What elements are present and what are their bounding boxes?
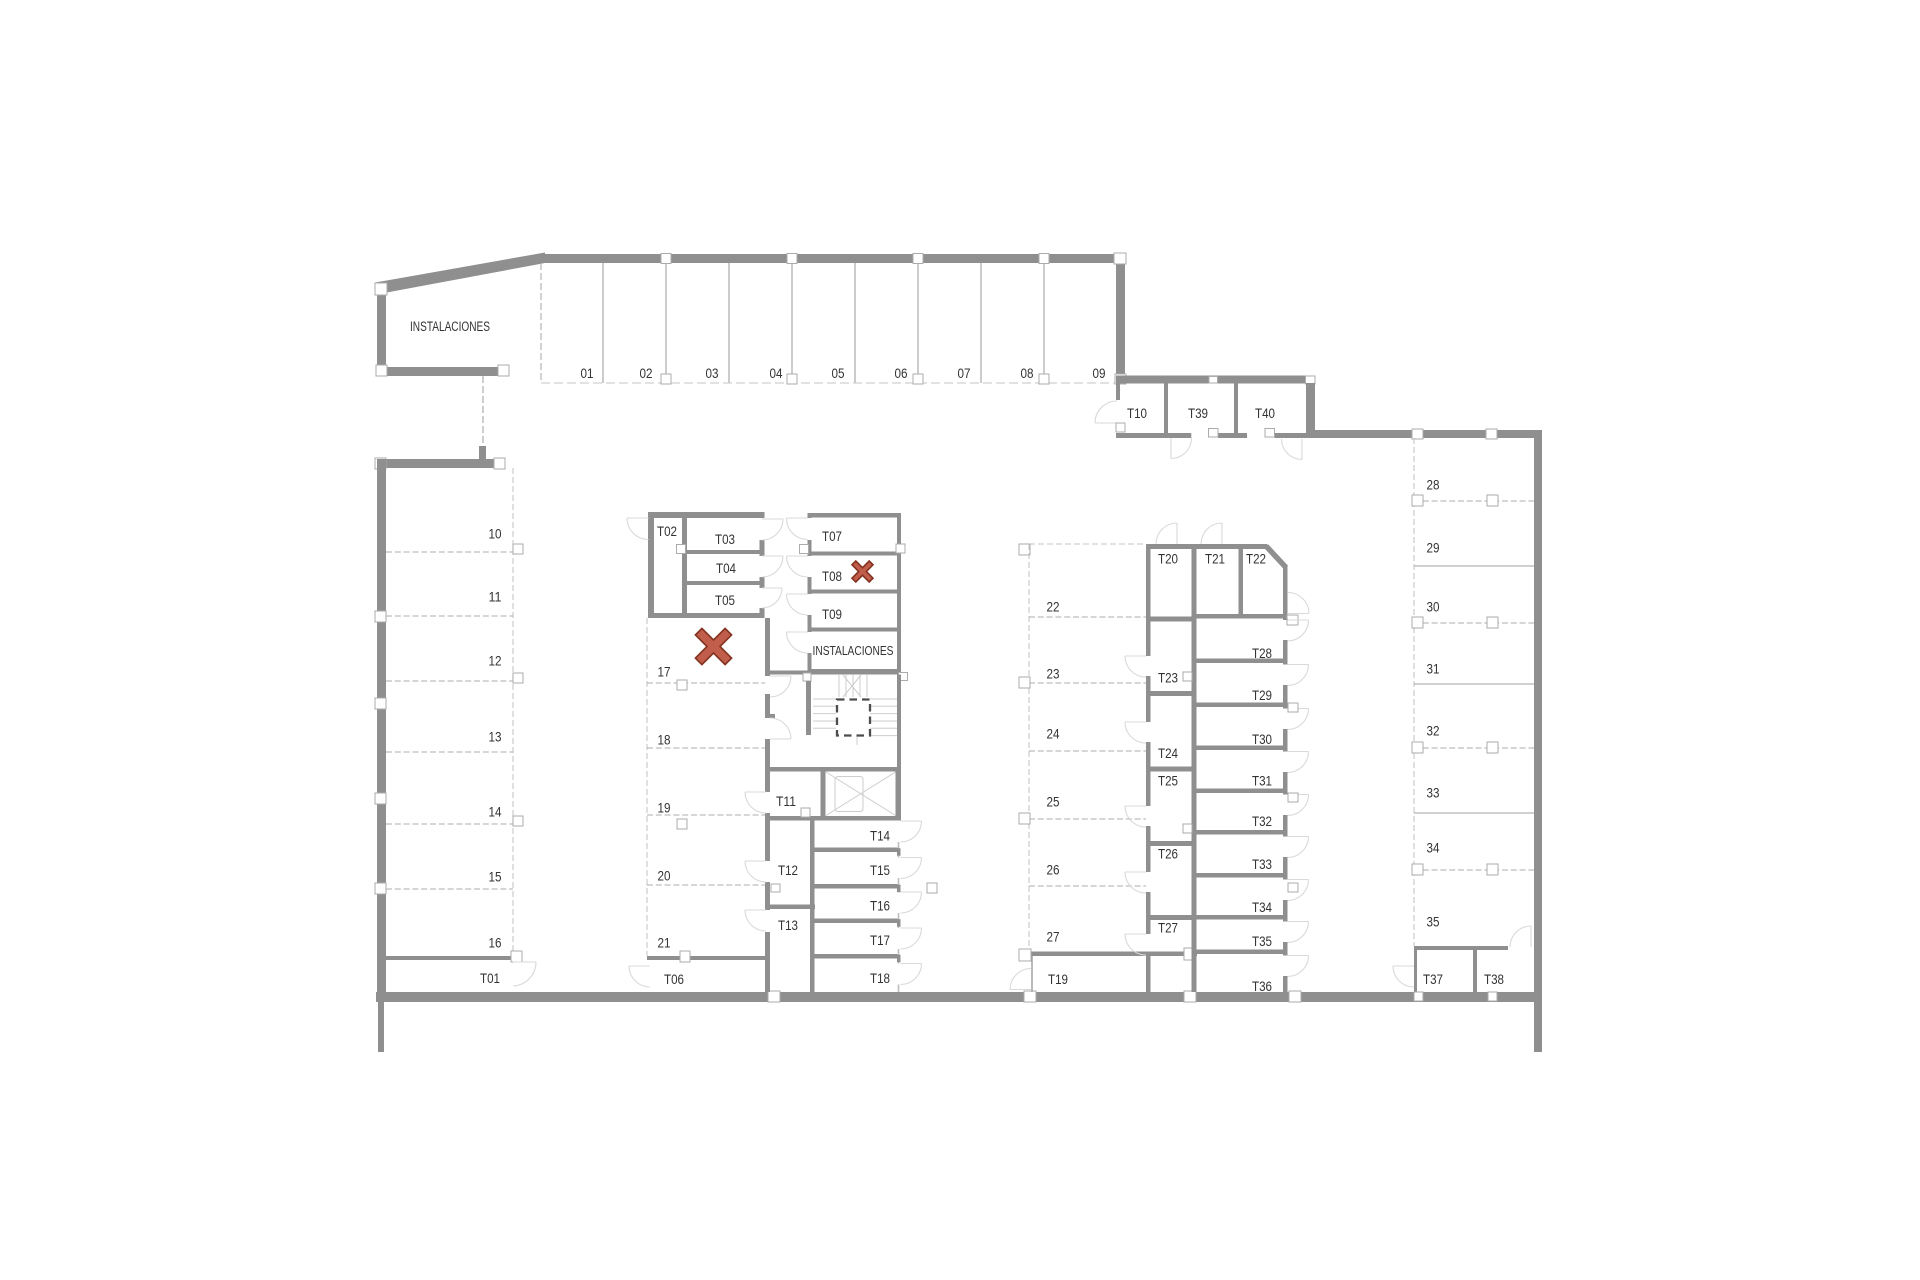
svg-text:T24: T24 xyxy=(1158,746,1178,761)
svg-text:T05: T05 xyxy=(715,593,735,608)
svg-text:T11: T11 xyxy=(776,794,796,809)
svg-text:17: 17 xyxy=(658,665,671,680)
svg-text:T37: T37 xyxy=(1423,972,1443,987)
svg-text:T40: T40 xyxy=(1255,406,1275,421)
svg-text:32: 32 xyxy=(1427,724,1440,739)
svg-text:23: 23 xyxy=(1047,667,1060,682)
svg-text:31: 31 xyxy=(1427,662,1440,677)
svg-text:T14: T14 xyxy=(870,829,890,844)
svg-text:T06: T06 xyxy=(664,972,684,987)
svg-text:33: 33 xyxy=(1427,786,1440,801)
svg-text:12: 12 xyxy=(489,654,502,669)
svg-text:T09: T09 xyxy=(822,607,842,622)
svg-text:18: 18 xyxy=(658,733,671,748)
svg-text:28: 28 xyxy=(1427,478,1440,493)
svg-text:27: 27 xyxy=(1047,930,1060,945)
svg-text:01: 01 xyxy=(581,366,594,381)
svg-text:13: 13 xyxy=(489,730,502,745)
svg-text:T32: T32 xyxy=(1252,814,1272,829)
svg-text:30: 30 xyxy=(1427,600,1440,615)
svg-text:T21: T21 xyxy=(1205,552,1225,567)
svg-text:T10: T10 xyxy=(1127,406,1147,421)
svg-text:T25: T25 xyxy=(1158,774,1178,789)
svg-text:T34: T34 xyxy=(1252,900,1272,915)
svg-text:T27: T27 xyxy=(1158,921,1178,936)
svg-text:T39: T39 xyxy=(1188,406,1208,421)
svg-text:T31: T31 xyxy=(1252,774,1272,789)
svg-text:08: 08 xyxy=(1021,366,1034,381)
svg-text:T28: T28 xyxy=(1252,646,1272,661)
svg-text:T33: T33 xyxy=(1252,857,1272,872)
svg-text:T04: T04 xyxy=(716,561,736,576)
svg-text:T29: T29 xyxy=(1252,688,1272,703)
svg-text:06: 06 xyxy=(895,366,908,381)
svg-text:07: 07 xyxy=(958,366,971,381)
svg-text:11: 11 xyxy=(489,590,502,605)
svg-text:T03: T03 xyxy=(715,532,735,547)
svg-text:21: 21 xyxy=(658,936,671,951)
svg-text:09: 09 xyxy=(1093,366,1106,381)
svg-text:T07: T07 xyxy=(822,529,842,544)
svg-text:T23: T23 xyxy=(1158,671,1178,686)
svg-text:T13: T13 xyxy=(778,918,798,933)
svg-text:35: 35 xyxy=(1427,915,1440,930)
svg-text:19: 19 xyxy=(658,801,671,816)
svg-text:INSTALACIONES: INSTALACIONES xyxy=(410,319,490,334)
svg-text:25: 25 xyxy=(1047,795,1060,810)
svg-text:T15: T15 xyxy=(870,863,890,878)
svg-text:T36: T36 xyxy=(1252,979,1272,994)
svg-text:T17: T17 xyxy=(870,933,890,948)
svg-text:04: 04 xyxy=(770,366,783,381)
svg-text:T18: T18 xyxy=(870,971,890,986)
svg-text:14: 14 xyxy=(489,805,502,820)
svg-text:T35: T35 xyxy=(1252,934,1272,949)
svg-text:05: 05 xyxy=(832,366,845,381)
svg-text:T38: T38 xyxy=(1484,972,1504,987)
svg-text:T30: T30 xyxy=(1252,732,1272,747)
svg-text:24: 24 xyxy=(1047,727,1060,742)
svg-text:29: 29 xyxy=(1427,541,1440,556)
svg-text:15: 15 xyxy=(489,870,502,885)
svg-text:T22: T22 xyxy=(1246,552,1266,567)
svg-text:T01: T01 xyxy=(480,971,500,986)
svg-text:INSTALACIONES: INSTALACIONES xyxy=(813,644,894,658)
svg-text:T20: T20 xyxy=(1158,552,1178,567)
svg-text:T19: T19 xyxy=(1048,972,1068,987)
svg-text:34: 34 xyxy=(1427,841,1440,856)
svg-text:T08: T08 xyxy=(822,569,842,584)
svg-text:T26: T26 xyxy=(1158,847,1178,862)
svg-text:T12: T12 xyxy=(778,863,798,878)
svg-text:16: 16 xyxy=(489,936,502,951)
svg-text:22: 22 xyxy=(1047,600,1060,615)
svg-text:02: 02 xyxy=(640,366,653,381)
svg-text:10: 10 xyxy=(489,527,502,542)
svg-text:20: 20 xyxy=(658,869,671,884)
svg-text:26: 26 xyxy=(1047,863,1060,878)
svg-text:03: 03 xyxy=(706,366,719,381)
svg-text:T16: T16 xyxy=(870,899,890,914)
svg-text:T02: T02 xyxy=(657,524,677,539)
